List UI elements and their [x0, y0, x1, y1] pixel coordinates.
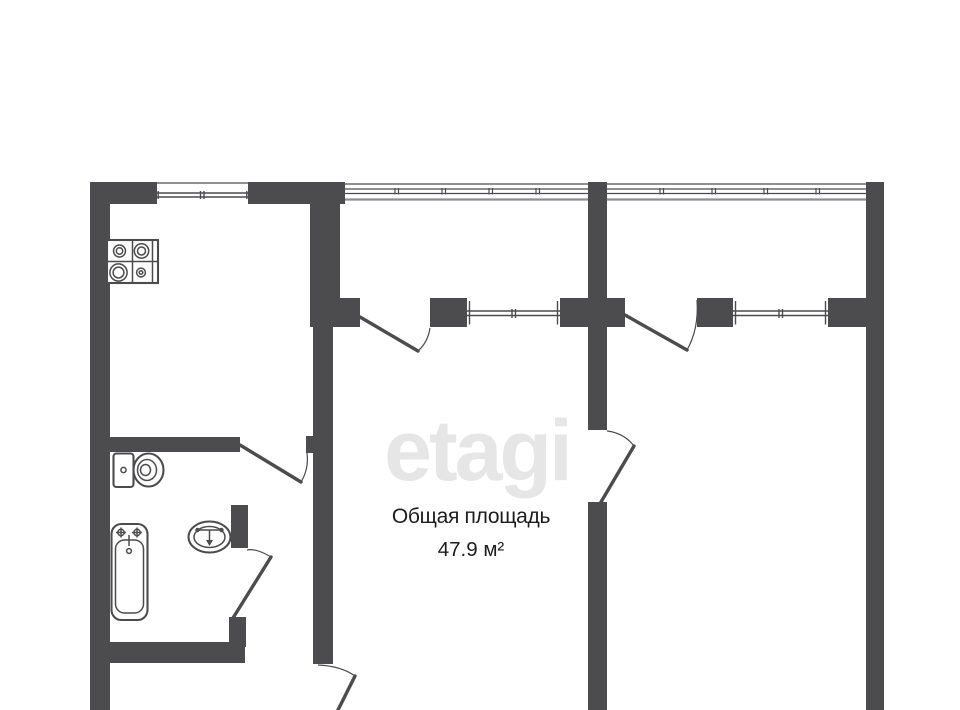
area-label: Общая площадь	[392, 505, 550, 529]
interior-window-left	[467, 301, 560, 325]
wall-room-divider-lower	[588, 502, 607, 710]
door-between-rooms	[601, 431, 634, 502]
loggia-window-left	[345, 184, 588, 200]
area-value: 47.9 м²	[438, 538, 505, 562]
wall-bathroom-top	[110, 437, 240, 452]
wall-room-divider-upper	[588, 182, 607, 430]
stove-icon	[107, 240, 158, 283]
interior-wall-right-2	[697, 298, 733, 327]
sink-icon	[189, 522, 231, 553]
interior-wall-left-1	[430, 298, 467, 327]
interior-window-right	[733, 301, 828, 325]
floor-plan-drawing	[0, 0, 960, 710]
door-jamb-kitchen	[306, 436, 313, 453]
door-kitchen	[240, 445, 307, 482]
door-loggia-right	[625, 300, 697, 350]
wall-junction-stub	[310, 298, 360, 327]
outer-wall-top-mid	[248, 182, 345, 204]
floor-plan-page: etagi	[0, 0, 960, 710]
windows	[157, 183, 866, 325]
wall-bathroom-stub-mid	[231, 505, 248, 548]
walls	[90, 182, 884, 710]
wall-kitchen-divider-lower	[313, 327, 333, 664]
outer-wall-right	[866, 182, 884, 710]
fixtures	[107, 240, 231, 620]
door-loggia-left	[360, 317, 430, 351]
wall-bathroom-bottom	[90, 642, 245, 663]
toilet-icon	[114, 454, 164, 488]
interior-wall-right-3	[828, 298, 866, 327]
kitchen-window	[157, 183, 248, 199]
interior-wall-right-1	[607, 298, 625, 327]
wall-kitchen-divider-upper	[310, 204, 340, 298]
door-entry	[318, 665, 355, 710]
bathtub-icon	[112, 524, 148, 620]
door-bathroom	[233, 550, 271, 618]
loggia-window-right	[607, 184, 866, 200]
